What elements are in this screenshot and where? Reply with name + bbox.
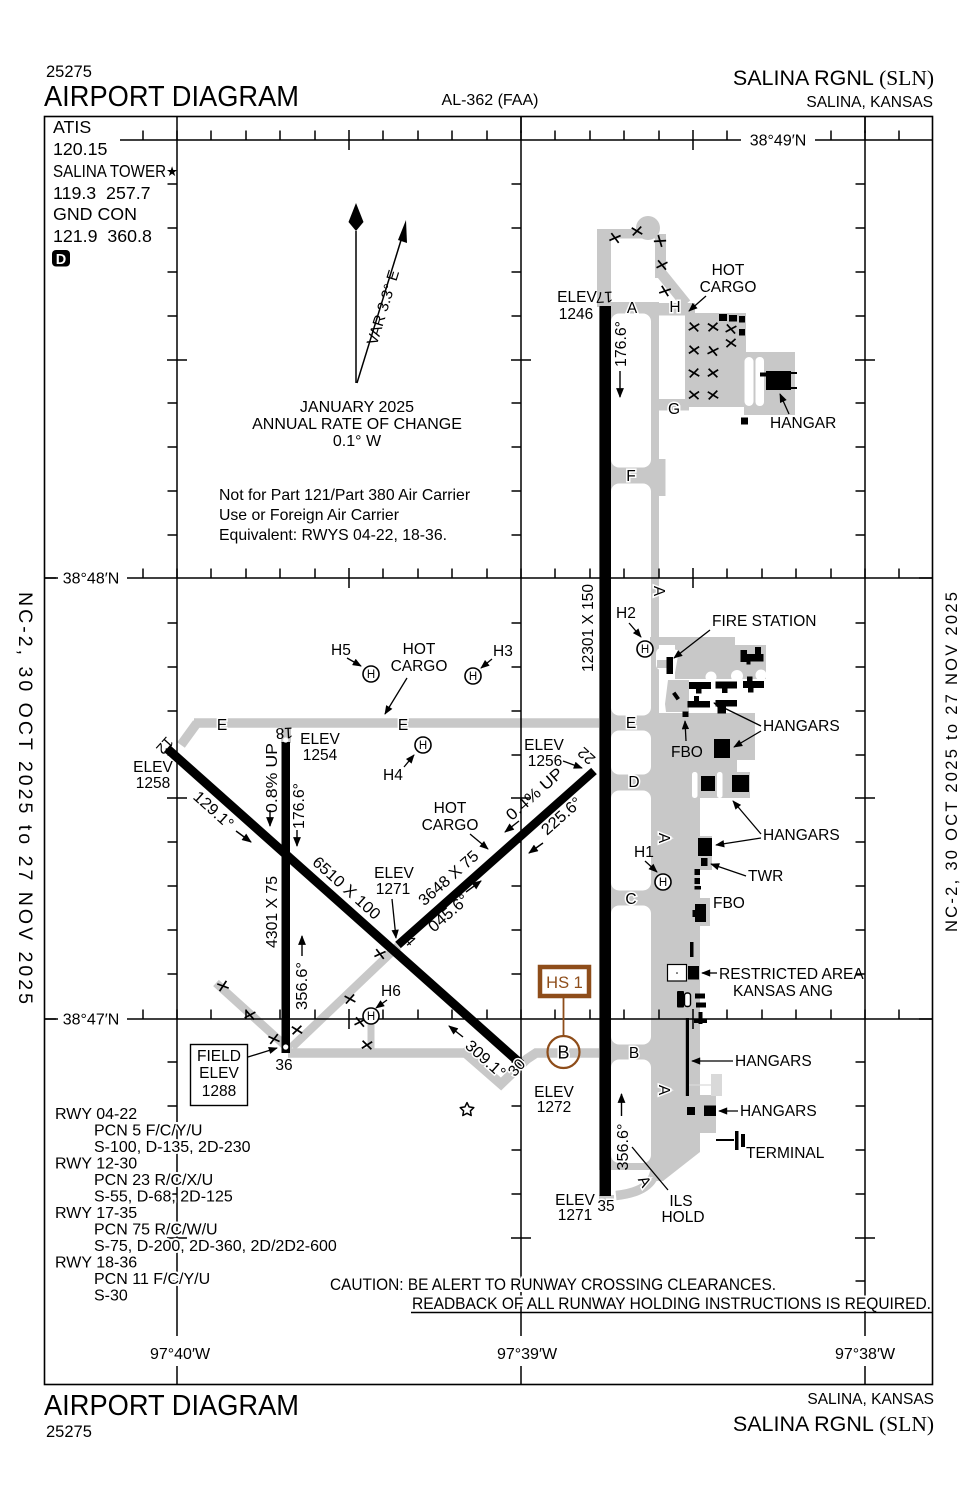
svg-text:HOT: HOT — [434, 800, 467, 817]
svg-text:H: H — [419, 740, 427, 752]
svg-text:E: E — [626, 715, 636, 732]
svg-text:ELEV: ELEV — [199, 1065, 239, 1082]
svg-text:S-75, D-200, 2D-360, 2D/2D2-60: S-75, D-200, 2D-360, 2D/2D2-600 — [94, 1238, 337, 1255]
svg-text:0.8% UP: 0.8% UP — [264, 743, 281, 813]
svg-text:D: D — [56, 252, 66, 268]
svg-text:S-55, D-68, 2D-125: S-55, D-68, 2D-125 — [94, 1189, 233, 1206]
svg-text:H: H — [641, 644, 649, 656]
svg-text:B: B — [629, 1045, 639, 1062]
svg-text:S-100, D-135, 2D-230: S-100, D-135, 2D-230 — [94, 1139, 251, 1156]
svg-text:CARGO: CARGO — [422, 817, 479, 834]
svg-text:SALINA TOWER★: SALINA TOWER★ — [53, 161, 178, 181]
svg-text:1246: 1246 — [559, 306, 593, 323]
svg-text:H5: H5 — [331, 642, 351, 659]
svg-text:0.1° W: 0.1° W — [333, 433, 382, 450]
svg-text:E: E — [398, 717, 408, 734]
svg-text:KANSAS ANG: KANSAS ANG — [733, 983, 833, 1000]
svg-text:22: 22 — [575, 743, 599, 767]
svg-text:SALINA, KANSAS: SALINA, KANSAS — [806, 94, 933, 111]
svg-text:ATIS: ATIS — [53, 117, 91, 137]
svg-text:HANGARS: HANGARS — [740, 1103, 817, 1120]
svg-text:TWR: TWR — [748, 868, 783, 885]
svg-text:25275: 25275 — [46, 63, 92, 81]
svg-text:97°38′W: 97°38′W — [835, 1346, 896, 1363]
svg-text:1271: 1271 — [558, 1207, 592, 1224]
svg-text:H: H — [367, 1011, 375, 1023]
svg-text:ELEV: ELEV — [374, 865, 414, 882]
svg-text:A: A — [655, 833, 672, 844]
svg-text:ELEV: ELEV — [557, 289, 597, 306]
svg-text:4: 4 — [400, 932, 419, 950]
svg-text:176.6°: 176.6° — [291, 783, 308, 829]
svg-text:NC-2, 30 OCT 2025 to 27 NOV: NC-2, 30 OCT 2025 to 27 NOV 2025 — [14, 592, 36, 1004]
svg-text:SALINA RGNL (SLN): SALINA RGNL (SLN) — [733, 1412, 934, 1436]
svg-text:97°40′W: 97°40′W — [150, 1346, 211, 1363]
svg-text:38°48′N: 38°48′N — [63, 571, 120, 588]
svg-text:ELEV: ELEV — [300, 731, 340, 748]
svg-text:H: H — [669, 299, 680, 316]
svg-text:S-30: S-30 — [94, 1288, 128, 1305]
svg-text:H6: H6 — [381, 983, 401, 1000]
svg-text:A: A — [655, 1085, 672, 1096]
svg-text:CARGO: CARGO — [700, 279, 757, 296]
svg-text:FBO: FBO — [713, 895, 745, 912]
svg-text:FBO: FBO — [671, 744, 703, 761]
svg-text:ILS: ILS — [669, 1193, 692, 1210]
svg-text:356.6°: 356.6° — [615, 1124, 632, 1171]
svg-text:RWY 12-30: RWY 12-30 — [55, 1156, 137, 1173]
svg-text:HANGARS: HANGARS — [763, 827, 840, 844]
svg-text:GND CON: GND CON — [53, 204, 137, 224]
svg-text:AIRPORT DIAGRAM: AIRPORT DIAGRAM — [44, 1390, 299, 1422]
svg-text:PCN 5 F/C/Y/U: PCN 5 F/C/Y/U — [94, 1123, 202, 1140]
svg-text:356.6°: 356.6° — [294, 962, 311, 1010]
svg-text:120.15: 120.15 — [53, 139, 107, 159]
svg-text:1272: 1272 — [537, 1099, 571, 1116]
svg-text:H1: H1 — [634, 844, 654, 861]
svg-text:AIRPORT DIAGRAM: AIRPORT DIAGRAM — [44, 81, 299, 113]
svg-text:Use or Foreign Air Carrier: Use or Foreign Air Carrier — [219, 507, 399, 524]
svg-text:H: H — [367, 669, 375, 681]
svg-text:RWY 17-35: RWY 17-35 — [55, 1205, 137, 1222]
svg-text:119.3 257.7: 119.3 257.7 — [53, 183, 151, 203]
svg-text:PCN 75 R/C/W/U: PCN 75 R/C/W/U — [94, 1222, 218, 1239]
svg-text:25275: 25275 — [46, 1423, 92, 1441]
svg-text:G: G — [668, 401, 680, 418]
svg-text:D: D — [628, 774, 639, 791]
svg-text:FIRE STATION: FIRE STATION — [712, 613, 816, 630]
svg-text:READBACK OF ALL RUNWAY HOLDING: READBACK OF ALL RUNWAY HOLDING INSTRUCTI… — [412, 1295, 931, 1313]
svg-text:A: A — [627, 300, 638, 317]
svg-text:F: F — [626, 468, 635, 485]
svg-text:B: B — [557, 1043, 569, 1063]
svg-text:VAR 3.3° E: VAR 3.3° E — [364, 268, 403, 347]
svg-text:RWY 18-36: RWY 18-36 — [55, 1255, 137, 1272]
svg-text:H: H — [659, 877, 667, 889]
svg-text:35: 35 — [597, 1198, 614, 1215]
svg-text:HANGARS: HANGARS — [763, 718, 840, 735]
svg-text:38°49′N: 38°49′N — [750, 133, 807, 150]
svg-text:FIELD: FIELD — [197, 1048, 241, 1065]
svg-text:ANNUAL RATE OF CHANGE: ANNUAL RATE OF CHANGE — [252, 416, 462, 433]
svg-text:17: 17 — [595, 288, 613, 306]
svg-text:4301 X 75: 4301 X 75 — [264, 876, 281, 948]
svg-text:38°47′N: 38°47′N — [63, 1012, 120, 1029]
svg-text:97°39′W: 97°39′W — [497, 1346, 558, 1363]
svg-text:12301 X 150: 12301 X 150 — [580, 584, 597, 672]
svg-text:C: C — [625, 891, 636, 908]
svg-text:PCN 11 F/C/Y/U: PCN 11 F/C/Y/U — [94, 1271, 210, 1288]
svg-text:SALINA RGNL (SLN): SALINA RGNL (SLN) — [733, 66, 934, 90]
svg-text:HANGAR: HANGAR — [770, 415, 836, 432]
svg-text:HOT: HOT — [403, 641, 436, 658]
svg-text:JANUARY 2025: JANUARY 2025 — [300, 399, 414, 416]
svg-text:RWY 04-22: RWY 04-22 — [55, 1106, 137, 1123]
svg-text:1258: 1258 — [136, 775, 170, 792]
svg-text:Not for Part 121/Part 380 Air: Not for Part 121/Part 380 Air Carrier — [219, 487, 470, 504]
svg-text:1288: 1288 — [202, 1083, 236, 1100]
svg-text:121.9 360.8: 121.9 360.8 — [53, 226, 152, 246]
svg-text:1254: 1254 — [303, 747, 338, 764]
svg-text:E: E — [217, 717, 227, 734]
svg-text:HOLD: HOLD — [661, 1209, 704, 1226]
svg-text:H: H — [469, 671, 477, 683]
svg-text:CAUTION: BE ALERT TO RUNWAY CR: CAUTION: BE ALERT TO RUNWAY CROSSING CLE… — [330, 1276, 776, 1294]
svg-text:AL-362 (FAA): AL-362 (FAA) — [442, 92, 539, 109]
svg-text:TERMINAL: TERMINAL — [746, 1145, 825, 1162]
svg-text:ELEV: ELEV — [524, 737, 564, 754]
svg-text:HOT: HOT — [712, 262, 745, 279]
svg-text:H3: H3 — [493, 643, 513, 660]
svg-text:HS 1: HS 1 — [546, 974, 583, 992]
svg-text:176.6°: 176.6° — [613, 321, 630, 367]
svg-text:18: 18 — [275, 724, 293, 742]
svg-text:PCN 23 R/C/X/U: PCN 23 R/C/X/U — [94, 1172, 213, 1189]
svg-text:H2: H2 — [616, 605, 636, 622]
svg-text:ELEV: ELEV — [133, 759, 173, 776]
svg-text:A: A — [650, 586, 667, 597]
svg-text:SALINA, KANSAS: SALINA, KANSAS — [807, 1391, 934, 1408]
svg-text:H4: H4 — [383, 767, 403, 784]
svg-text:Equivalent: RWYS 04-22, 18-36.: Equivalent: RWYS 04-22, 18-36. — [219, 527, 447, 544]
svg-text:NC-2, 30 OCT 2025 to 27 NOV: NC-2, 30 OCT 2025 to 27 NOV 2025 — [943, 592, 961, 932]
svg-text:CARGO: CARGO — [391, 658, 448, 675]
svg-text:36: 36 — [275, 1057, 292, 1074]
svg-text:HANGARS: HANGARS — [735, 1053, 812, 1070]
svg-text:RESTRICTED AREA: RESTRICTED AREA — [719, 966, 864, 983]
svg-text:1271: 1271 — [376, 881, 410, 898]
